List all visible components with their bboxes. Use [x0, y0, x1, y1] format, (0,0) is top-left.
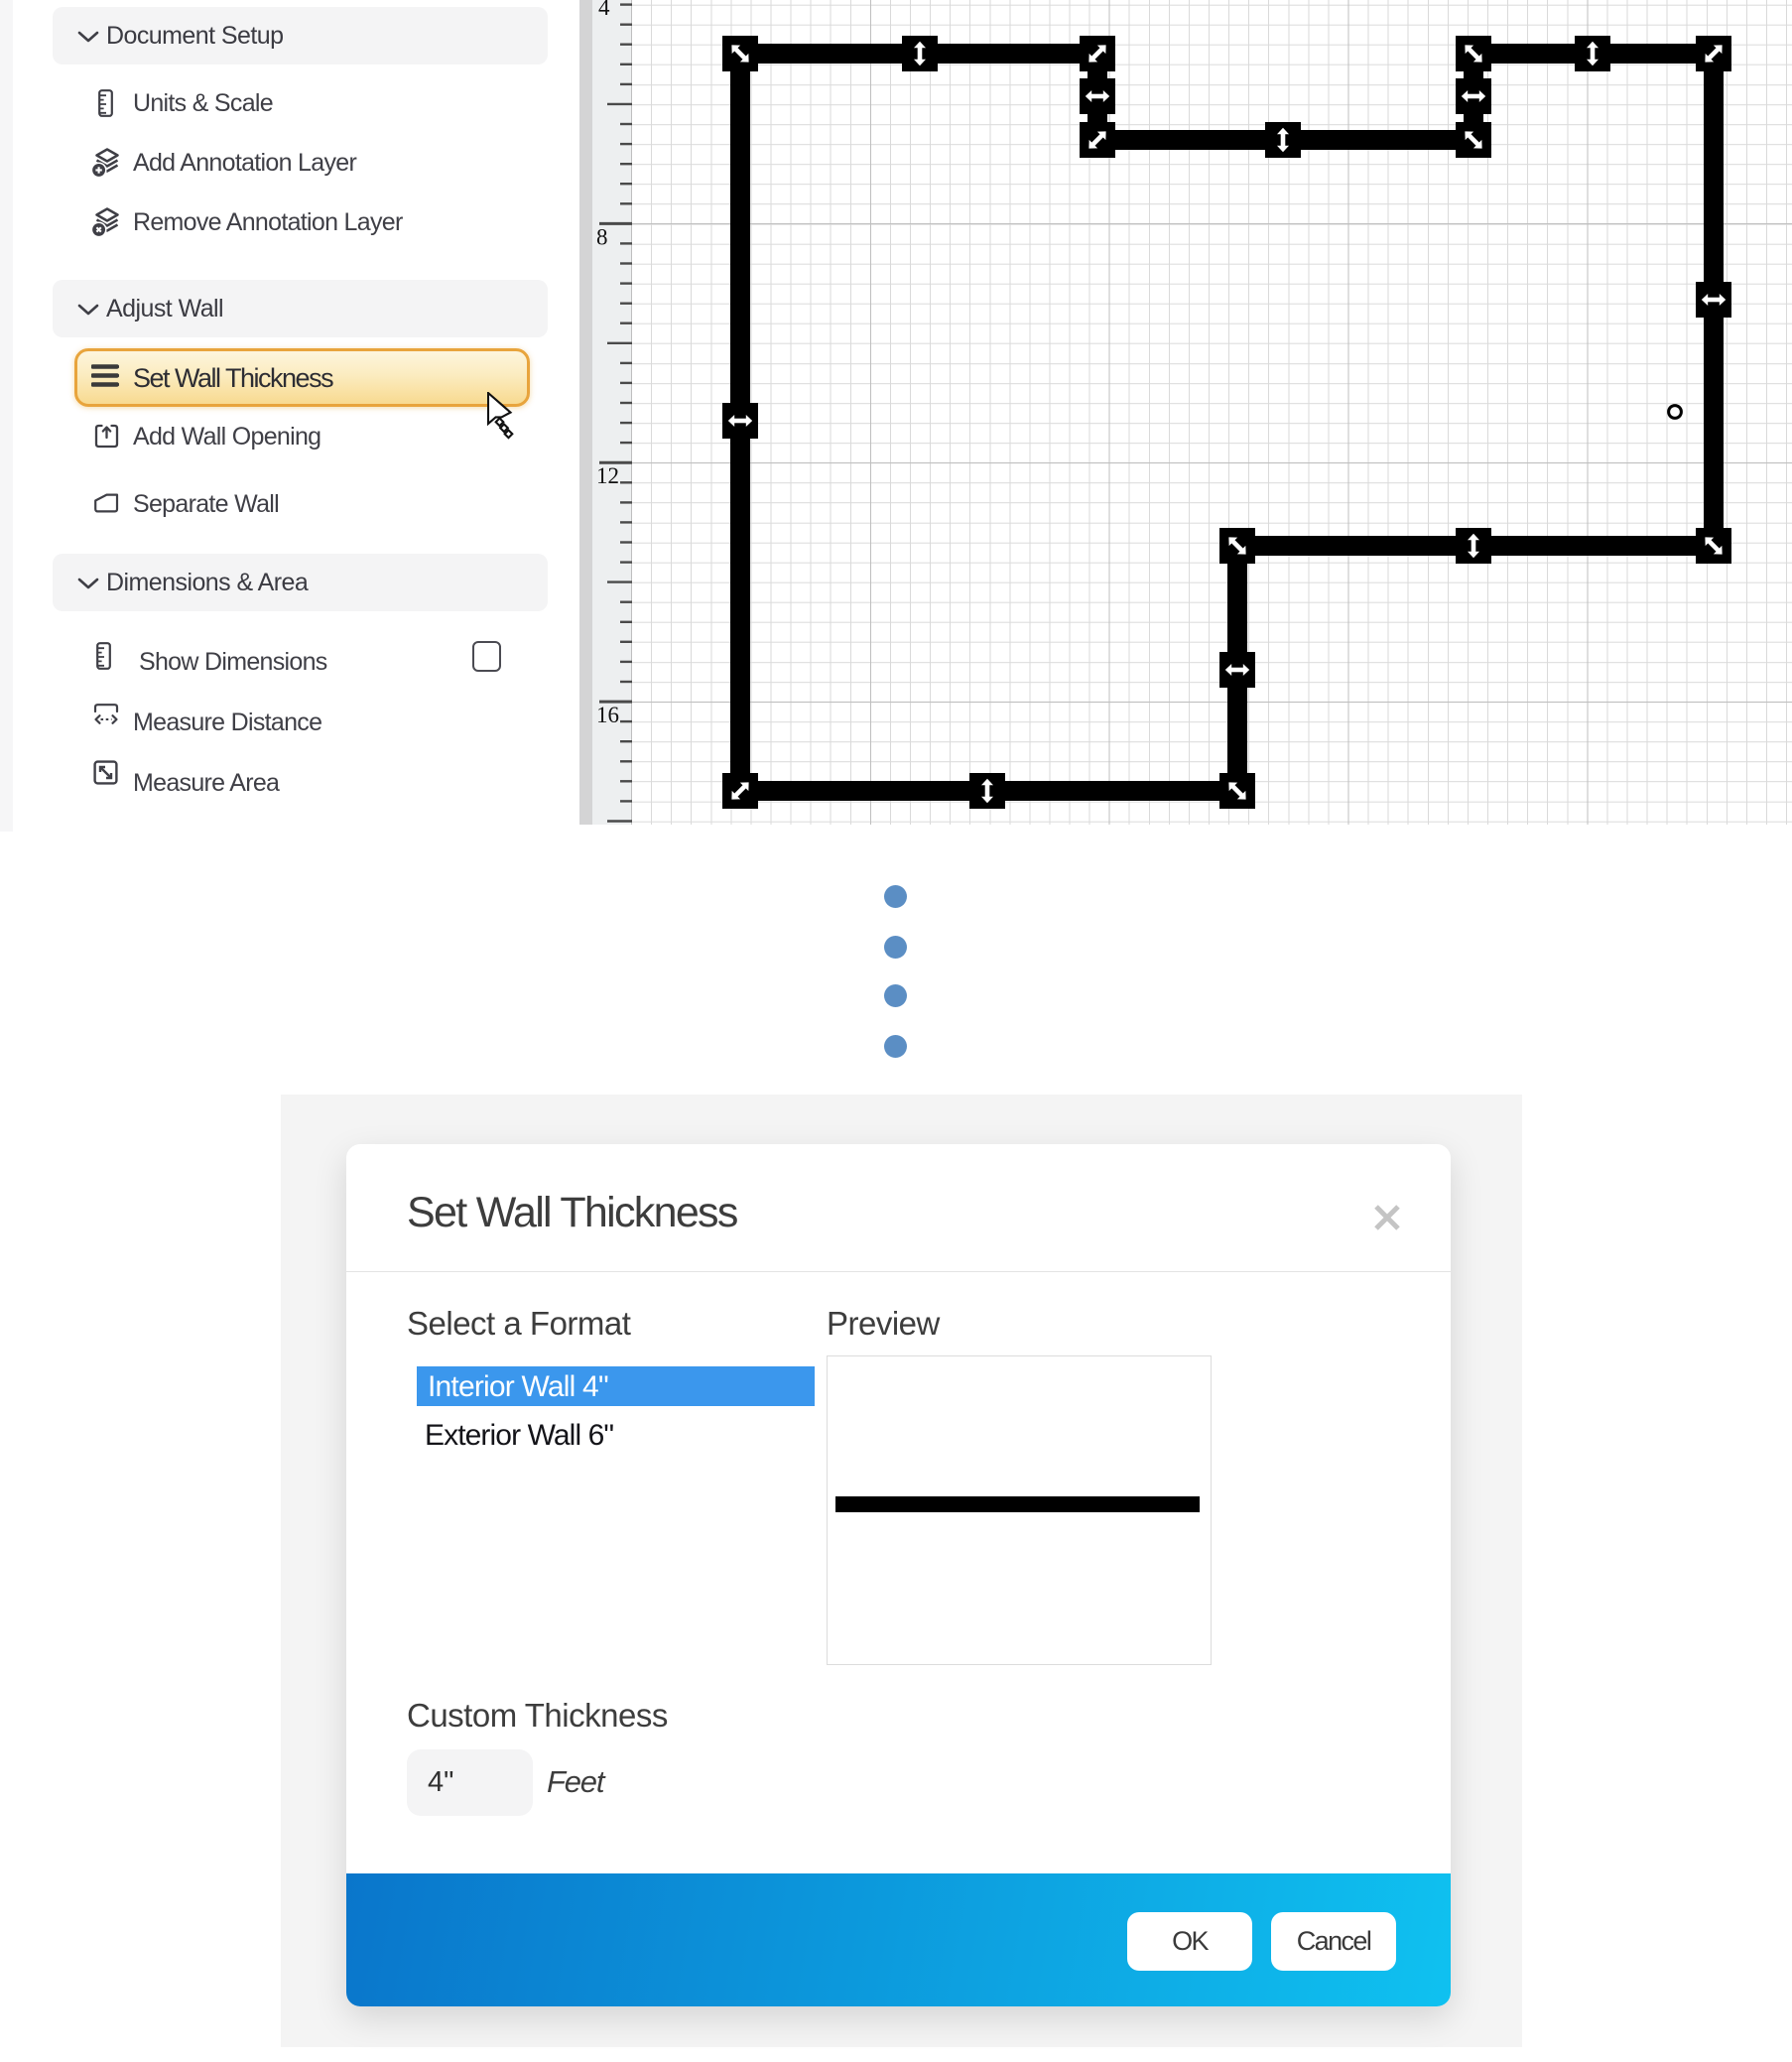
svg-text:4: 4	[598, 0, 610, 20]
svg-text:8: 8	[596, 224, 608, 249]
svg-text:12: 12	[596, 463, 619, 488]
svg-text:16: 16	[596, 703, 619, 727]
